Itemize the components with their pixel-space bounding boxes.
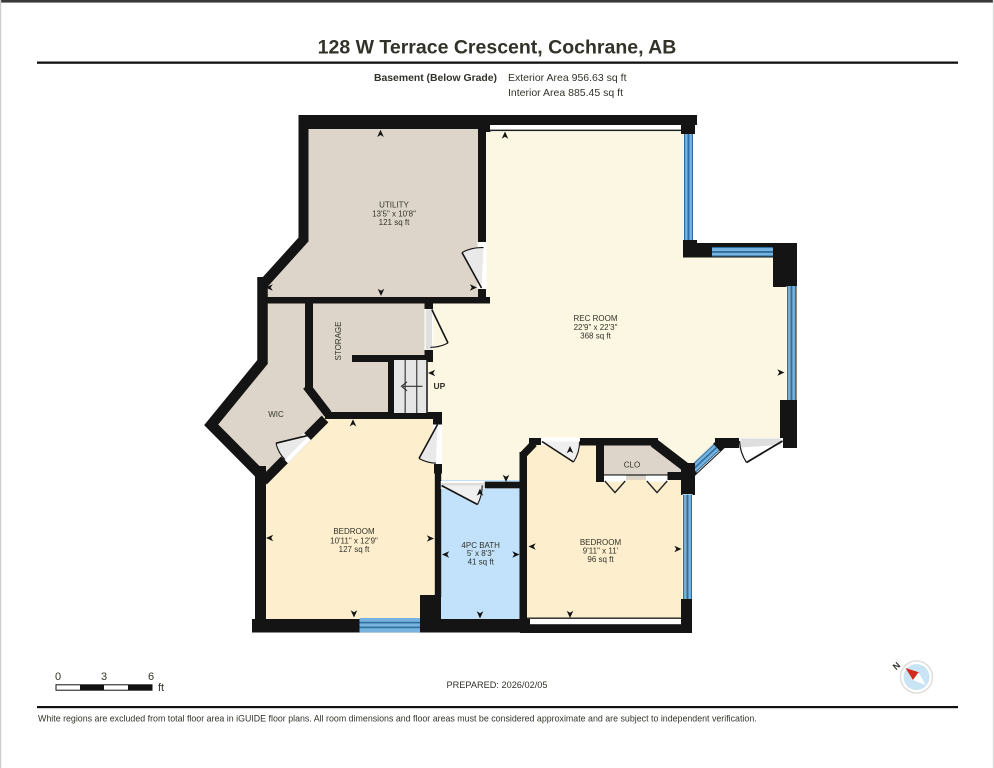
svg-text:Exterior Area 956.63 sq ft: Exterior Area 956.63 sq ft bbox=[508, 72, 627, 84]
svg-text:UP: UP bbox=[434, 381, 446, 391]
svg-text:127 sq ft: 127 sq ft bbox=[339, 545, 370, 554]
svg-text:Interior Area 885.45 sq ft: Interior Area 885.45 sq ft bbox=[508, 87, 623, 99]
svg-text:6: 6 bbox=[148, 671, 154, 683]
svg-text:White regions are excluded fro: White regions are excluded from total fl… bbox=[38, 714, 757, 724]
svg-text:ft: ft bbox=[158, 682, 164, 694]
svg-text:STORAGE: STORAGE bbox=[334, 322, 343, 361]
svg-text:BEDROOM: BEDROOM bbox=[333, 527, 375, 536]
svg-text:Basement (Below Grade): Basement (Below Grade) bbox=[374, 73, 497, 84]
svg-text:0: 0 bbox=[55, 671, 61, 683]
svg-text:41 sq ft: 41 sq ft bbox=[468, 557, 495, 566]
svg-text:3: 3 bbox=[101, 671, 107, 683]
svg-text:368 sq ft: 368 sq ft bbox=[580, 332, 611, 341]
svg-text:CLO: CLO bbox=[624, 461, 640, 470]
svg-text:121 sq ft: 121 sq ft bbox=[379, 218, 410, 227]
svg-text:REC ROOM: REC ROOM bbox=[574, 314, 618, 323]
svg-text:PREPARED: 2026/02/05: PREPARED: 2026/02/05 bbox=[447, 680, 548, 690]
svg-text:96 sq ft: 96 sq ft bbox=[587, 555, 614, 564]
svg-text:UTILITY: UTILITY bbox=[379, 201, 409, 210]
svg-text:WIC: WIC bbox=[268, 410, 284, 419]
svg-text:128 W Terrace Crescent, Cochra: 128 W Terrace Crescent, Cochrane, AB bbox=[318, 37, 677, 59]
